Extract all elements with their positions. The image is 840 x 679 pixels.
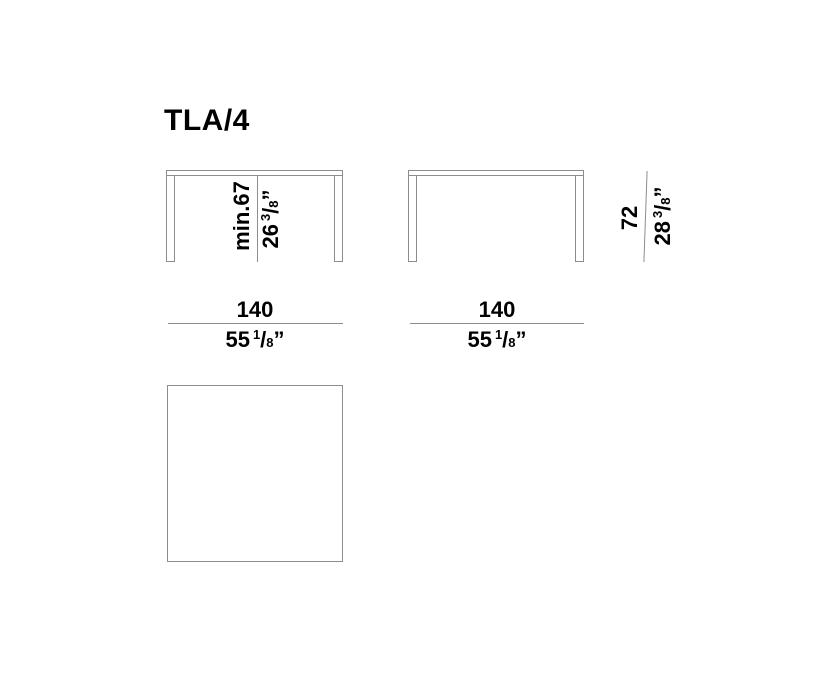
- imperial-fraction-numerator: 1: [253, 327, 260, 342]
- front-view-b-width-dimension-line: [410, 323, 584, 324]
- front-view-b-height-imperial-label: 283/8”: [652, 186, 674, 245]
- imperial-whole: 55: [225, 327, 249, 352]
- front-view-b-tabletop: [408, 170, 584, 176]
- top-view-square: [167, 385, 343, 562]
- dimension-drawing: TLA/4 min.67 263/8” 140 551/8” 72 283/8”…: [0, 0, 840, 679]
- front-view-a-height-imperial-label: 263/8”: [260, 189, 282, 248]
- front-view-a-height-metric-label: min.67: [231, 181, 253, 251]
- front-view-a-tabletop: [166, 170, 343, 176]
- imperial-fraction-denominator: 8: [266, 335, 273, 350]
- imperial-inch-mark: ”: [516, 327, 527, 352]
- imperial-fraction-numerator: 1: [495, 327, 502, 342]
- front-view-b-height-metric-label: 72: [619, 206, 641, 230]
- imperial-fraction-denominator: 8: [658, 197, 673, 204]
- front-view-a-width-metric-label: 140: [237, 299, 274, 321]
- product-code-title: TLA/4: [164, 106, 250, 136]
- imperial-whole: 55: [467, 327, 491, 352]
- imperial-inch-mark: ”: [258, 189, 283, 200]
- imperial-fraction-denominator: 8: [266, 200, 281, 207]
- front-view-a-width-dimension-line: [168, 323, 343, 324]
- imperial-fraction-denominator: 8: [508, 335, 515, 350]
- front-view-a-width-imperial-label: 551/8”: [225, 329, 284, 351]
- front-view-a-leg-right: [334, 175, 343, 262]
- imperial-fraction-numerator: 3: [650, 211, 665, 218]
- front-view-b-width-metric-label: 140: [479, 299, 516, 321]
- front-view-b-leg-left: [408, 175, 417, 262]
- front-view-a-leg-left: [166, 175, 175, 262]
- imperial-whole: 26: [258, 224, 283, 248]
- imperial-inch-mark: ”: [274, 327, 285, 352]
- front-view-b-leg-right: [575, 175, 584, 262]
- imperial-inch-mark: ”: [650, 186, 675, 197]
- imperial-whole: 28: [650, 221, 675, 245]
- front-view-b-width-imperial-label: 551/8”: [467, 329, 526, 351]
- imperial-fraction-numerator: 3: [258, 214, 273, 221]
- front-view-b-height-dimension-line: [643, 171, 647, 262]
